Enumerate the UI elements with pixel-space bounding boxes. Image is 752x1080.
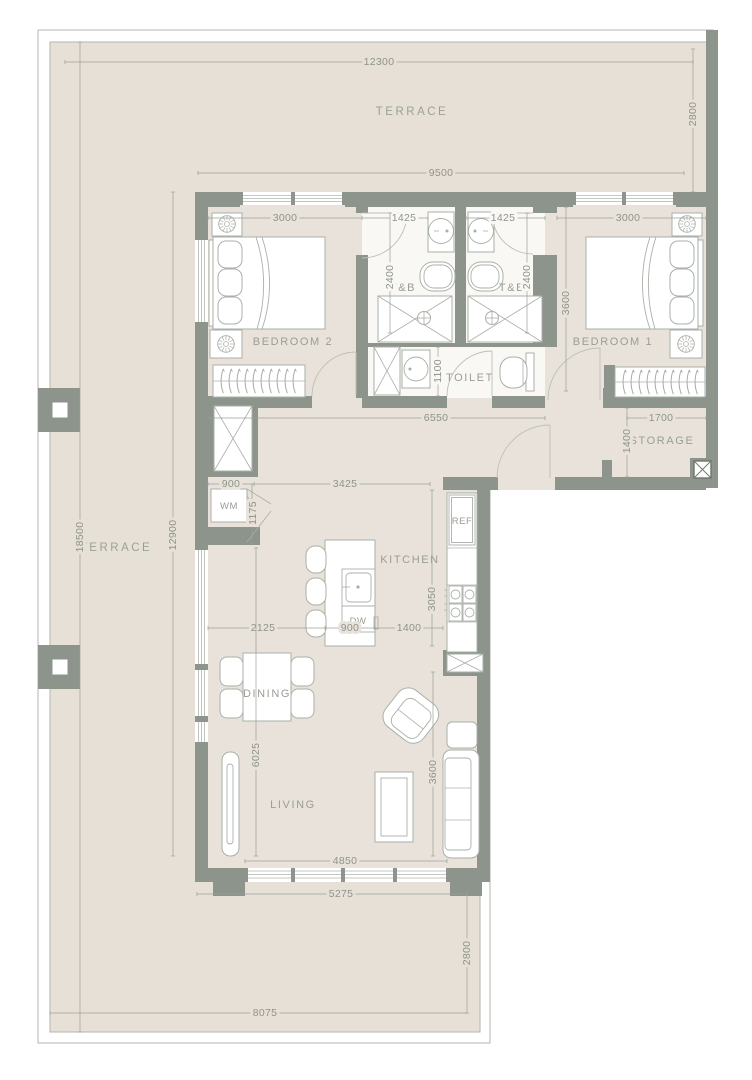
label-refrigerator: REF bbox=[452, 516, 473, 527]
dim-tb-right-depth: 2400 bbox=[521, 265, 533, 290]
label-washing-machine: WM bbox=[220, 501, 238, 512]
dim-kitchen-run: 3050 bbox=[426, 587, 438, 612]
room-label-dining: DINING bbox=[243, 688, 291, 700]
terrace-column bbox=[38, 645, 80, 689]
shaft-kitchen bbox=[447, 654, 483, 672]
dim-living-length: 6025 bbox=[250, 743, 262, 768]
bedroom2-north-window bbox=[240, 192, 345, 205]
bed-bedroom2 bbox=[209, 237, 325, 329]
dim-island-width: 900 bbox=[341, 622, 359, 634]
tv-console bbox=[222, 752, 239, 856]
dim-laundry-width: 900 bbox=[222, 478, 240, 490]
room-label-toilet: TOILET bbox=[446, 372, 494, 384]
dim-terrace-bottom-width: 8075 bbox=[253, 1007, 278, 1019]
dim-unit-top-width: 9500 bbox=[429, 167, 454, 179]
bar-stool bbox=[306, 610, 326, 637]
dim-storage-width: 1700 bbox=[649, 412, 674, 424]
side-table bbox=[447, 722, 477, 748]
dim-dining-width: 2125 bbox=[251, 622, 276, 634]
room-label-bedroom2: BEDROOM 2 bbox=[253, 336, 333, 348]
dim-living-window-width: 4850 bbox=[333, 855, 358, 867]
dim-unit-left-length: 12900 bbox=[167, 520, 179, 551]
dim-tb-right-width: 1425 bbox=[491, 212, 516, 224]
nightstand-lamp bbox=[670, 330, 702, 358]
floor-plan-page: TERRACE TERRACE BEDROOM 2 BEDROOM 1 T&B … bbox=[0, 0, 752, 1080]
dim-entry-recess: 1175 bbox=[247, 501, 259, 525]
dim-terrace-left-length: 18500 bbox=[74, 522, 86, 553]
bedroom2-west-window bbox=[195, 237, 208, 325]
dim-terrace-top-depth: 2800 bbox=[687, 102, 699, 127]
room-label-kitchen: KITCHEN bbox=[380, 554, 439, 566]
shaft-corridor bbox=[214, 406, 252, 471]
dim-terrace-bottom-window: 5275 bbox=[329, 888, 354, 900]
dim-terrace-bottom-depth: 2800 bbox=[461, 941, 473, 966]
room-label-bedroom1: BEDROOM 1 bbox=[573, 336, 653, 348]
shower-tb-right bbox=[468, 296, 542, 342]
dim-island-clearance: 1400 bbox=[397, 622, 422, 634]
room-label-storage: STORAGE bbox=[630, 435, 695, 447]
sofa bbox=[443, 750, 479, 858]
room-label-terrace-top: TERRACE bbox=[376, 106, 448, 118]
bathtub-tb-left bbox=[420, 262, 455, 291]
terrace-column bbox=[38, 388, 80, 432]
room-label-terrace-left: TERRACE bbox=[80, 542, 152, 554]
dim-bedroom1-width: 3000 bbox=[616, 212, 641, 224]
bar-stool bbox=[306, 578, 326, 605]
dim-tb-left-width: 1425 bbox=[392, 212, 417, 224]
wardrobe-bedroom1 bbox=[615, 367, 705, 397]
living-west-window bbox=[195, 547, 208, 745]
nightstand-lamp bbox=[672, 213, 702, 236]
floor-plan-svg: TERRACE TERRACE BEDROOM 2 BEDROOM 1 T&B … bbox=[0, 0, 752, 1080]
bed-bedroom1 bbox=[586, 237, 703, 329]
room-label-living: LIVING bbox=[270, 799, 316, 811]
nightstand-lamp bbox=[212, 213, 242, 236]
dim-hall-width: 6550 bbox=[424, 412, 449, 424]
coffee-table bbox=[375, 772, 413, 842]
dim-terrace-top-width: 12300 bbox=[364, 56, 395, 68]
living-south-window bbox=[245, 868, 449, 882]
dim-bedroom2-width: 3000 bbox=[273, 212, 298, 224]
sink-tb-left bbox=[428, 212, 454, 252]
dim-toilet-depth: 1100 bbox=[432, 359, 444, 383]
wardrobe-bedroom2 bbox=[213, 365, 305, 397]
sink-toilet bbox=[402, 350, 430, 388]
bar-stool bbox=[306, 546, 326, 573]
nightstand-lamp bbox=[210, 330, 242, 358]
dim-bedroom1-depth: 3600 bbox=[560, 291, 572, 316]
dim-living-depth: 3600 bbox=[427, 760, 439, 785]
dim-tb-left-depth: 2400 bbox=[384, 265, 396, 290]
shower-tb-left bbox=[378, 296, 452, 342]
bedroom1-north-window bbox=[573, 192, 676, 205]
dim-hallway-width: 3425 bbox=[333, 478, 358, 490]
dim-storage-depth: 1400 bbox=[621, 429, 633, 454]
bathtub-tb-right bbox=[468, 262, 503, 291]
shaft-storage bbox=[694, 461, 711, 478]
shaft-toilet bbox=[374, 347, 400, 395]
wc-toilet bbox=[500, 353, 534, 391]
